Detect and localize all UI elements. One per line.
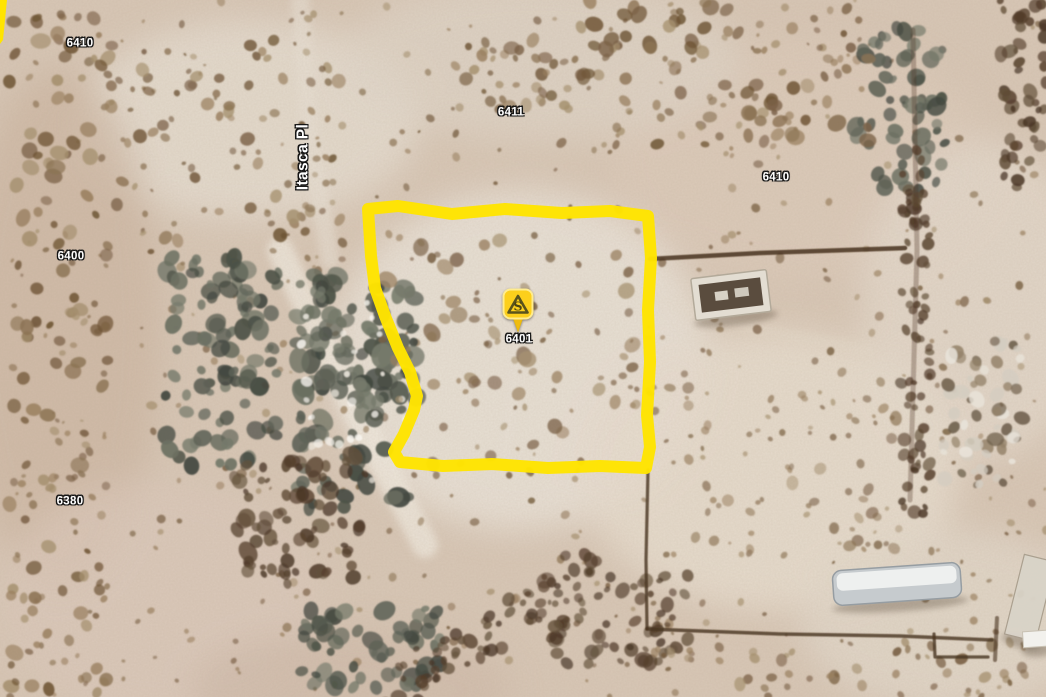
address-label-6380: 6380: [57, 496, 84, 508]
satellite-map-view[interactable]: 6410 6411 6410 6400 6401 6380 Itasca Pl …: [0, 0, 1046, 697]
marker-letter: S: [513, 299, 522, 314]
address-label-6411: 6411: [498, 107, 524, 119]
sale-pin-icon: S: [500, 287, 536, 333]
for-sale-listing-marker[interactable]: S: [500, 287, 536, 333]
map-overlay: 6410 6411 6410 6400 6401 6380 Itasca Pl …: [0, 0, 1046, 697]
address-label-6401-parcel: 6401: [506, 334, 533, 346]
address-label-6400: 6400: [58, 251, 85, 263]
address-label-6410-e: 6410: [763, 172, 790, 184]
street-label-itasca-pl: Itasca Pl: [295, 124, 311, 191]
address-label-6410-nw: 6410: [67, 38, 94, 50]
